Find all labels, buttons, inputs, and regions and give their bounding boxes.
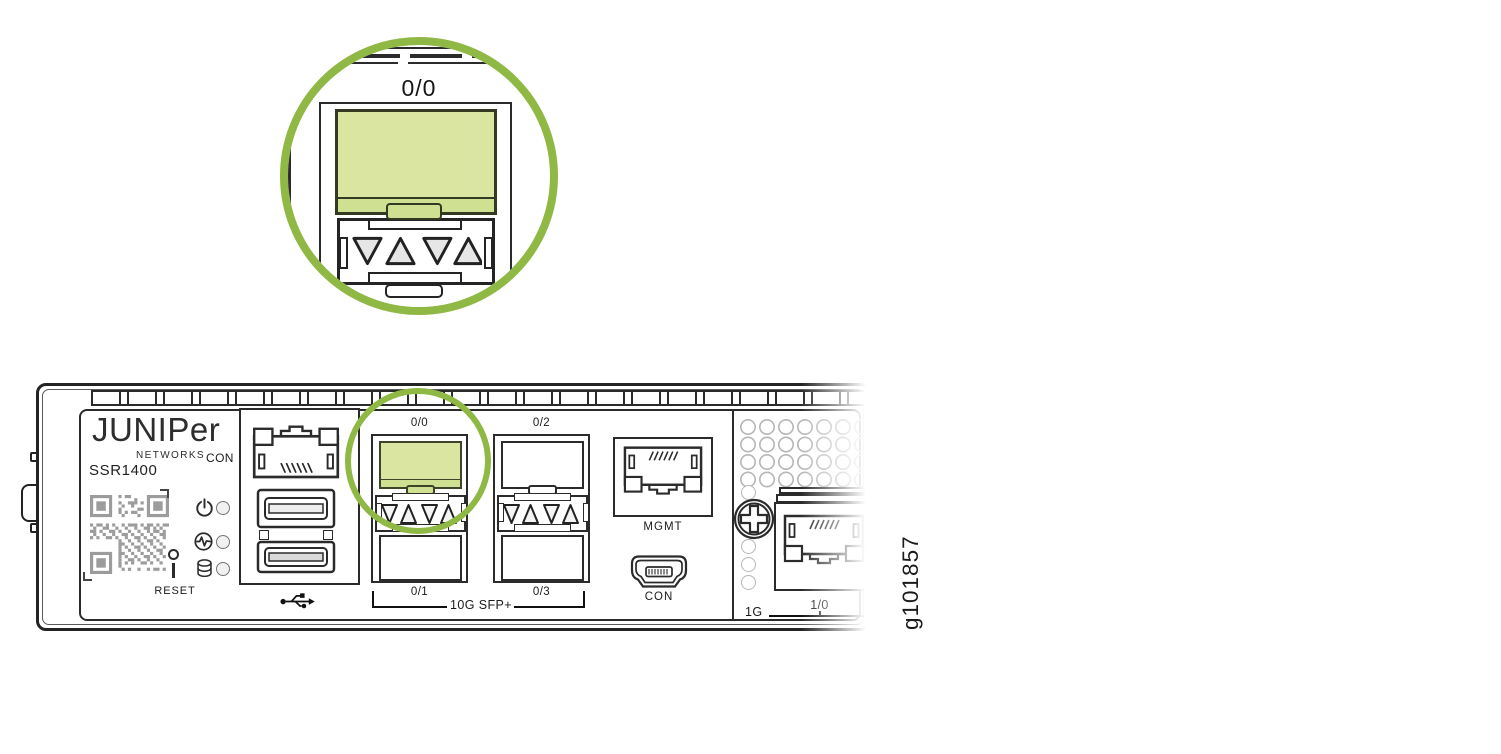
reset-label: RESET [146, 585, 204, 597]
latch-bottom-bar [514, 524, 571, 532]
juniper-networks-label: NETWORKS [92, 450, 205, 461]
mini-usb-console-port[interactable] [629, 554, 689, 591]
vent-hole [741, 539, 756, 554]
power-led [216, 501, 230, 515]
reset-pointer-line [172, 563, 175, 578]
latch-side-slot [339, 237, 348, 269]
status-pulse-icon [193, 531, 214, 552]
reset-button[interactable] [168, 549, 179, 560]
panel-line-fragment [300, 54, 400, 58]
usb-port-b[interactable] [256, 540, 336, 574]
usb-mount-square [259, 530, 269, 540]
callout-port-label: 0/0 [288, 75, 550, 102]
phillips-screw-icon [733, 498, 775, 540]
sfp-group-bracket-left [372, 591, 447, 608]
figure-canvas: 0/0 [0, 0, 1501, 754]
port-highlight-ring [345, 388, 491, 534]
ge-group-label: 1G [745, 605, 762, 619]
juniper-logo: JUNIPer [92, 413, 220, 446]
latch-top-bar [514, 493, 571, 501]
panel-line-fragment [288, 137, 291, 212]
latch-side-slot [583, 503, 589, 522]
status-led [216, 535, 230, 549]
sfp-cage-b [493, 434, 590, 583]
rj45-mgmt-port[interactable] [622, 444, 704, 506]
panel-line-fragment [408, 62, 550, 64]
magnified-port-callout: 0/0 [280, 37, 558, 315]
usb-mount-square [323, 530, 333, 540]
storage-led [216, 562, 230, 576]
callout-clip: 0/0 [288, 45, 550, 307]
model-label: SSR1400 [89, 462, 157, 479]
qr-corner-mark [160, 489, 169, 498]
vent-hole [741, 557, 756, 572]
illustration-fade [801, 378, 891, 636]
sfp-port-0-1[interactable] [379, 535, 462, 581]
usb-icon [279, 590, 316, 609]
qr-corner-mark [83, 572, 92, 581]
latch-side-slot [484, 237, 493, 269]
sfp-port-0-2[interactable] [501, 441, 584, 489]
power-icon [194, 497, 215, 518]
sfp-transceiver-0-0 [335, 109, 497, 215]
top-vent-slots [91, 390, 864, 406]
mgmt-label: MGMT [613, 521, 713, 533]
latch-top-bar [368, 219, 462, 230]
transceiver-tab [386, 203, 442, 220]
sfp-port-label-0-2: 0/2 [493, 417, 590, 429]
latch-triangles-icon [502, 502, 582, 526]
qr-code [90, 494, 169, 575]
latch-triangles-icon [350, 233, 482, 269]
disk-icon [196, 558, 213, 579]
cage-lower-tab [385, 284, 443, 298]
panel-line-fragment [318, 47, 528, 49]
rj45-console-port[interactable] [251, 413, 341, 481]
sfp-group-bracket-right [514, 591, 585, 608]
panel-line-fragment [472, 54, 546, 58]
usb-port-a[interactable] [256, 488, 336, 529]
sfp-port-0-3[interactable] [501, 535, 584, 581]
panel-line-fragment [288, 62, 398, 64]
vent-hole [741, 575, 756, 590]
panel-line-fragment [410, 54, 462, 58]
latch-bottom-bar [368, 272, 462, 284]
mini-console-label: CON [629, 591, 689, 603]
figure-id: g101857 [898, 512, 924, 630]
sfp-group-label: 10G SFP+ [444, 598, 518, 612]
console-port-label: CON [206, 451, 234, 465]
